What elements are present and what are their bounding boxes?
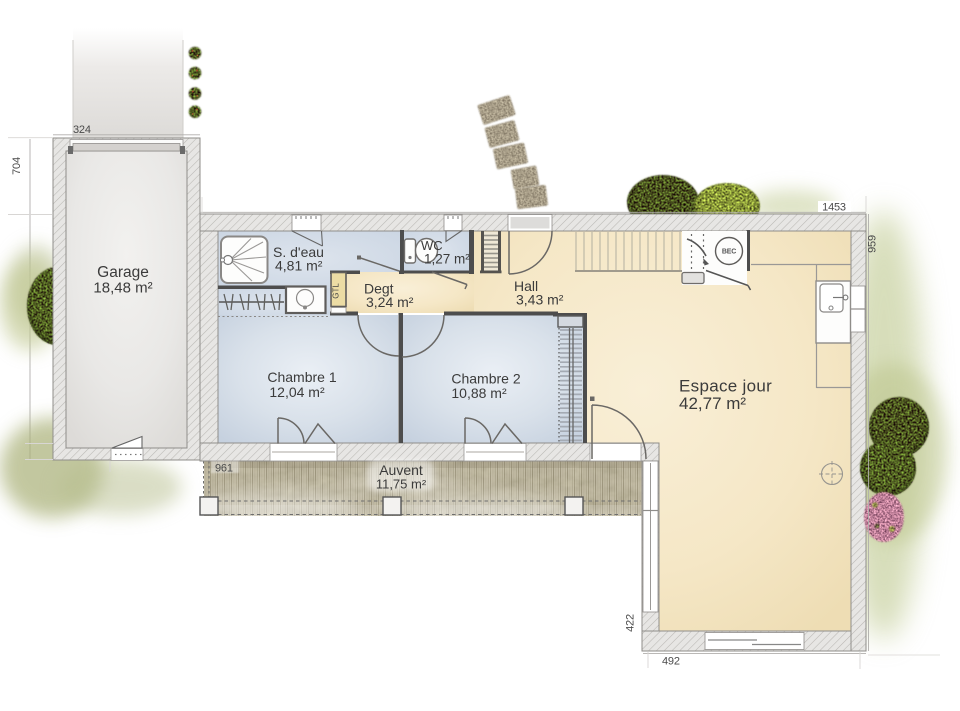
svg-text:961: 961 [215,463,233,475]
svg-text:3,43 m²: 3,43 m² [516,292,564,308]
svg-text:11,75 m²: 11,75 m² [376,477,427,492]
svg-text:324: 324 [73,124,91,136]
svg-text:BEC: BEC [722,249,736,256]
svg-text:492: 492 [662,656,680,668]
svg-text:10,88 m²: 10,88 m² [451,385,507,401]
svg-text:18,48 m²: 18,48 m² [93,280,152,297]
svg-text:GTL: GTL [332,283,341,299]
svg-text:704: 704 [11,157,23,175]
svg-text:Garage: Garage [97,264,149,281]
svg-text:959: 959 [867,235,879,253]
svg-text:422: 422 [625,614,637,632]
svg-text:Chambre 1: Chambre 1 [267,369,336,385]
svg-text:1453: 1453 [822,202,846,214]
svg-text:4,81 m²: 4,81 m² [275,258,323,274]
svg-text:1,27 m²: 1,27 m² [424,252,470,267]
svg-text:Espace jour: Espace jour [679,377,772,396]
svg-text:42,77 m²: 42,77 m² [679,394,746,413]
svg-text:3,24 m²: 3,24 m² [366,294,414,310]
svg-text:12,04 m²: 12,04 m² [269,384,325,400]
